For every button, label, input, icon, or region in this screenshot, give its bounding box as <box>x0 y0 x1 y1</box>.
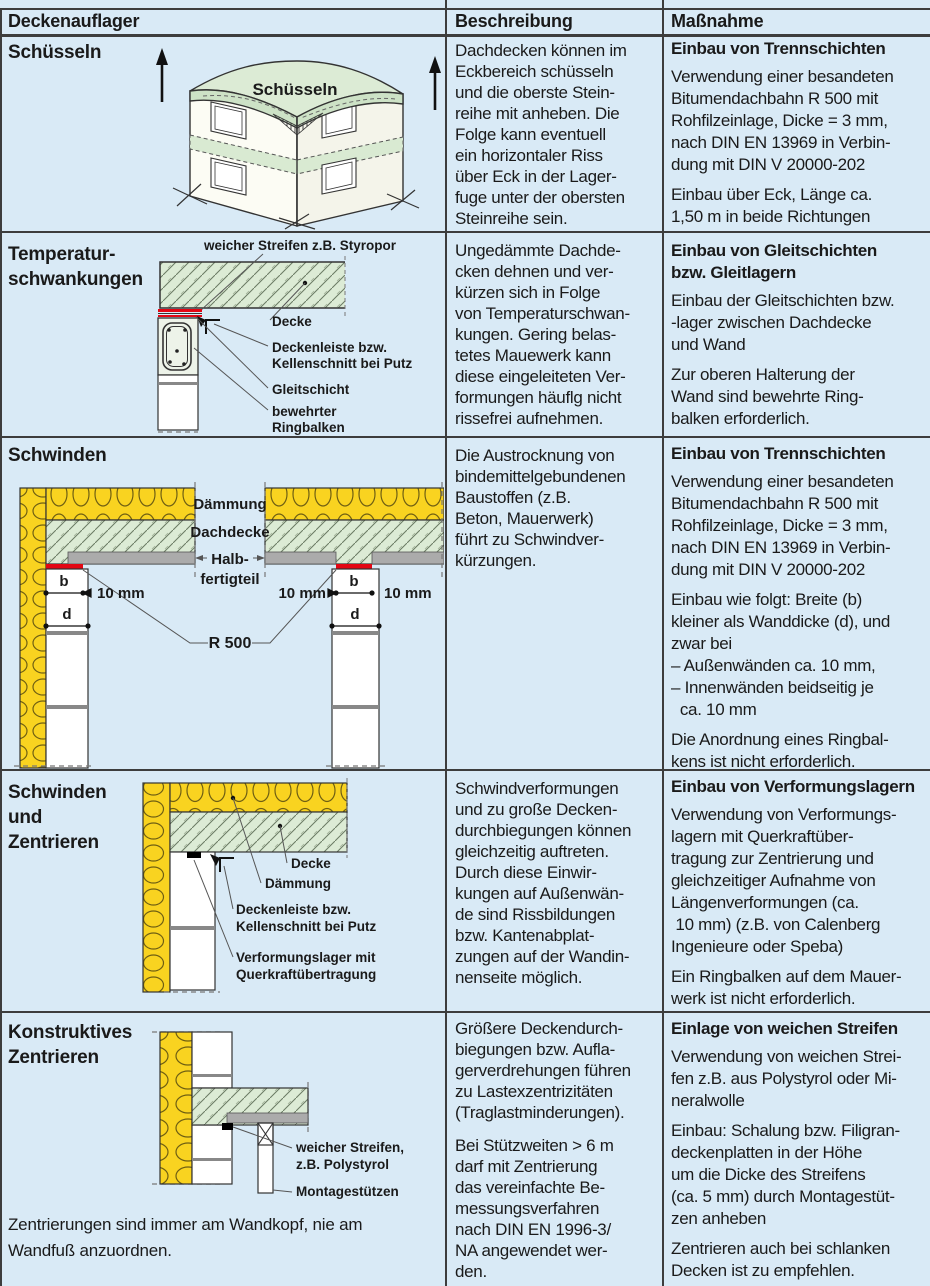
gleitschicht-red-layer <box>158 309 202 317</box>
label-decke: Decke <box>272 314 312 329</box>
row-title-temperaturschwankungen: Temperatur- schwankungen <box>8 242 143 292</box>
label-daemmung: Dämmung <box>193 496 266 513</box>
header-separator <box>0 34 930 37</box>
label-deckenleiste-2: Kellenschnitt bei Putz <box>236 919 377 934</box>
label-gleitschicht: Gleitschicht <box>272 382 350 397</box>
beschreibung-row-3: Die Austrocknung von bindemittelgebunden… <box>455 445 655 583</box>
diagram-temperaturschwankungen: weicher Streifen z.B. Styropor Decke Dec… <box>150 236 448 436</box>
header-massnahme: Maßnahme <box>671 11 763 32</box>
massnahme-row-5: Einlage von weichen Streifen Verwendung … <box>671 1018 925 1286</box>
dim-b-left: b <box>59 573 68 590</box>
beschreibung-row-5: Größere Deckendurch- biegungen bzw. Aufl… <box>455 1018 655 1286</box>
paragraph: Schwindverformungen und zu große Decken-… <box>455 778 655 988</box>
vertical-insulation <box>20 488 46 768</box>
diagram-labels: weicher Streifen, z.B. Polystyrol Montag… <box>295 1140 404 1199</box>
dim-d-right: d <box>350 606 359 623</box>
paragraph: Ungedämmte Dachde- cken dehnen und ver- … <box>455 240 655 429</box>
wall <box>164 852 220 992</box>
decke-slab <box>170 812 347 852</box>
massnahme-row-1: Einbau von Trennschichten Verwendung ein… <box>671 38 925 236</box>
diagram-schwinden-zentrieren: Decke Dämmung Deckenleiste bzw. Kellensc… <box>140 776 448 1004</box>
diagram-konstruktives-zentrieren: weicher Streifen, z.B. Polystyrol Montag… <box>140 1020 450 1208</box>
paragraph: Bei Stützweiten > 6 m darf mit Zentrieru… <box>455 1135 655 1282</box>
label-verformungslager-2: Querkraftübertragung <box>236 967 376 982</box>
paragraph: Verwendung einer besandeten Bitumendachb… <box>671 66 925 176</box>
table-top-border <box>0 8 930 10</box>
label-dachdecke: Dachdecke <box>190 524 269 541</box>
diagram-schwinden: Dämmung Dachdecke Halb- fertigteil b d 1… <box>4 478 444 770</box>
label-montagestuetzen: Montagestützen <box>296 1184 399 1199</box>
daemmung-band <box>170 783 347 812</box>
vertical-insulation <box>160 1032 192 1184</box>
header-deckenauflager: Deckenauflager <box>8 11 139 32</box>
dimension-lines <box>44 589 381 628</box>
row-title-schwinden-zentrieren: Schwinden und Zentrieren <box>8 780 107 855</box>
schuesseln-label: Schüsseln <box>252 80 337 99</box>
massnahme-heading: Einbau von Trennschichten <box>671 443 925 465</box>
label-halbfertigteil-1: Halb- <box>211 551 249 568</box>
verformungslager-block <box>187 852 201 858</box>
massnahme-heading: Einlage von weichen Streifen <box>671 1018 925 1040</box>
table-left-border <box>0 8 2 1286</box>
paragraph: Verwendung von weichen Strei- fen z.B. a… <box>671 1046 925 1112</box>
paragraph: Ein Ringbalken auf dem Mauer- werk ist n… <box>671 966 925 1010</box>
beschreibung-row-1: Dachdecken können im Eckbereich schüssel… <box>455 40 655 241</box>
massnahme-heading: Einbau von Trennschichten <box>671 38 925 60</box>
dim-10mm-right: 10 mm <box>384 585 432 602</box>
wall <box>158 375 198 432</box>
row-title-schuesseln: Schüsseln <box>8 40 101 65</box>
row-title-konstruktives-zentrieren: Konstruktives Zentrieren <box>8 1020 132 1070</box>
massnahme-heading: Einbau von Gleitschichten bzw. Gleitlage… <box>671 240 925 284</box>
row-title-schwinden: Schwinden <box>8 443 107 468</box>
dim-10mm-left: 10 mm <box>97 585 145 602</box>
label-deckenleiste-1: Deckenleiste bzw. <box>272 340 387 355</box>
header-beschreibung: Beschreibung <box>455 11 573 32</box>
massnahme-row-2: Einbau von Gleitschichten bzw. Gleitlage… <box>671 240 925 438</box>
paragraph: Einbau: Schalung bzw. Filigran- deckenpl… <box>671 1120 925 1230</box>
paragraph: Dachdecken können im Eckbereich schüssel… <box>455 40 655 229</box>
beschreibung-row-2: Ungedämmte Dachde- cken dehnen und ver- … <box>455 240 655 441</box>
label-halbfertigteil-2: fertigteil <box>200 571 259 588</box>
paragraph: Zur oberen Halterung der Wand sind beweh… <box>671 364 925 430</box>
label-decke: Decke <box>291 856 331 871</box>
roof-slab <box>160 262 345 308</box>
ringbalken <box>158 318 198 375</box>
paragraph: Verwendung von Verformungs- lagern mit Q… <box>671 804 925 958</box>
paragraph: Die Anordnung eines Ringbal- kens ist ni… <box>671 729 925 773</box>
paragraph: Einbau der Gleitschichten bzw. -lager zw… <box>671 290 925 356</box>
diagram-schuesseln-building: Schüsseln <box>145 38 450 230</box>
label-weicher-streifen-2: z.B. Polystyrol <box>296 1157 389 1172</box>
label-r500: R 500 <box>209 635 252 652</box>
label-weicher-streifen-1: weicher Streifen, <box>295 1140 404 1155</box>
label-ringbalken-1: bewehrter <box>272 404 337 419</box>
massnahme-row-3: Einbau von Trennschichten Verwendung ein… <box>671 443 925 781</box>
label-deckenleiste-1: Deckenleiste bzw. <box>236 902 351 917</box>
paragraph: Einbau über Eck, Länge ca. 1,50 m in bei… <box>671 184 925 228</box>
label-ringbalken-2: Ringbalken <box>272 420 345 435</box>
weicher-streifen-block <box>222 1123 233 1130</box>
dim-b-right: b <box>349 573 358 590</box>
filigran-platte <box>227 1113 308 1123</box>
column-divider-2 <box>662 0 664 1286</box>
left-section <box>46 488 195 768</box>
beschreibung-row-4: Schwindverformungen und zu große Decken-… <box>455 778 655 1000</box>
massnahme-row-4: Einbau von Verformungslagern Verwendung … <box>671 776 925 1018</box>
dim-10mm-mid: 10 mm <box>278 585 326 602</box>
paragraph: Verwendung einer besandeten Bitumendachb… <box>671 471 925 581</box>
footnote-zentrierungen: Zentrierungen sind immer am Wandkopf, ni… <box>8 1212 453 1264</box>
dim-d-left: d <box>62 606 71 623</box>
vertical-insulation <box>143 783 170 992</box>
label-weicher-streifen: weicher Streifen z.B. Styropor <box>203 238 397 253</box>
montagestuetze <box>258 1123 273 1193</box>
diagram-labels: Decke Dämmung Deckenleiste bzw. Kellensc… <box>236 856 377 982</box>
right-section <box>265 488 444 768</box>
label-deckenleiste-2: Kellenschnitt bei Putz <box>272 356 413 371</box>
handbook-table-page: Deckenauflager Beschreibung Maßnahme Sch… <box>0 0 930 1286</box>
paragraph: Größere Deckendurch- biegungen bzw. Aufl… <box>455 1018 655 1123</box>
paragraph: Die Austrocknung von bindemittelgebunden… <box>455 445 655 571</box>
label-daemmung: Dämmung <box>265 876 331 891</box>
paragraph: Einbau wie folgt: Breite (b) kleiner als… <box>671 589 925 721</box>
label-verformungslager-1: Verformungslager mit <box>236 950 376 965</box>
paragraph: Zentrieren auch bei schlanken Decken ist… <box>671 1238 925 1282</box>
massnahme-heading: Einbau von Verformungslagern <box>671 776 925 798</box>
